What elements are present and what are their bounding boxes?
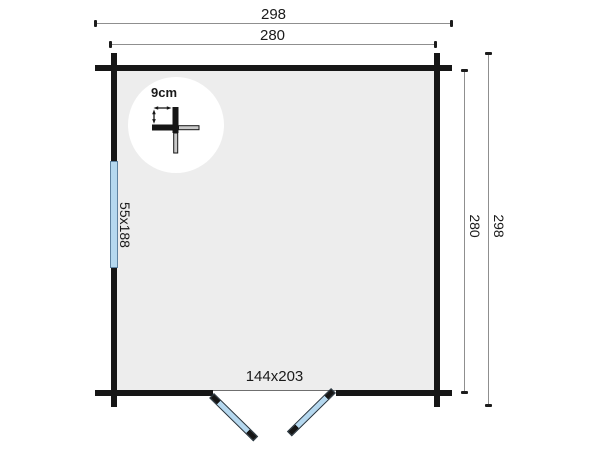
- dim-tick: [434, 41, 437, 48]
- door-size-label: 144x203: [213, 368, 336, 385]
- dim-tick: [485, 404, 492, 407]
- wall-right: [434, 53, 440, 407]
- dim-line-top-outer: [95, 23, 452, 24]
- dim-line-right-inner: [464, 70, 465, 392]
- door-leaf-right: [287, 388, 336, 436]
- wall-top: [95, 65, 452, 71]
- wall-thickness-detail: 9cm: [128, 77, 224, 173]
- dim-line-top-inner: [110, 44, 435, 45]
- corner-joint-icon: [128, 77, 224, 173]
- floor-plan: 55x188 298 280 280 298 9cm: [0, 0, 600, 450]
- dim-line-right-outer: [488, 53, 489, 405]
- dim-label-top-outer: 298: [95, 6, 452, 23]
- dim-tick: [461, 69, 468, 72]
- door-leaf-left: [209, 393, 258, 441]
- door-threshold: [213, 390, 336, 391]
- dim-tick: [461, 391, 468, 394]
- dim-label-top-inner: 280: [110, 27, 435, 44]
- wall-left-lower: [111, 267, 117, 407]
- dim-tick: [485, 52, 492, 55]
- dim-tick: [450, 20, 453, 27]
- dim-label-right-inner: 280: [468, 196, 483, 256]
- dim-label-right-outer: 298: [492, 196, 507, 256]
- dim-tick: [94, 20, 97, 27]
- window-size-label: 55x188: [118, 178, 133, 272]
- wall-left-upper: [111, 53, 117, 161]
- dim-tick: [109, 41, 112, 48]
